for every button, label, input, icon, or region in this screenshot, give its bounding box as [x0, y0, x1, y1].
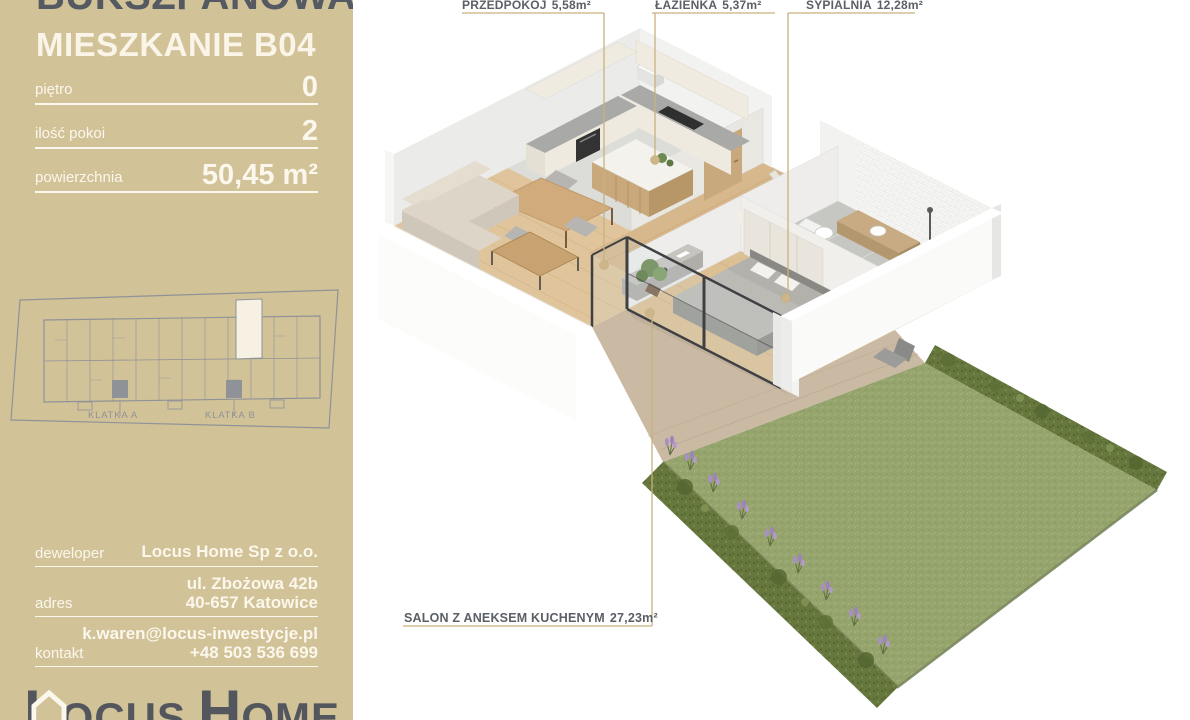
unit-number: B04 [254, 26, 316, 64]
room-area: 5,37m² [722, 0, 761, 12]
developer-label: deweloper [35, 545, 104, 562]
logo-ome: OME [241, 697, 340, 720]
address-label: adres [35, 595, 73, 612]
spec-row-rooms: ilość pokoi 2 [35, 105, 318, 149]
spec-label: powierzchnia [35, 169, 123, 190]
flyer-page: { "sidebar": { "project_name": "BUKSZPAN… [0, 0, 1190, 720]
room-name: ŁAZIENKA [655, 0, 717, 12]
klatka-b-label: KLATKA B [205, 410, 256, 421]
room-area: 27,23m² [610, 611, 658, 625]
house-icon [30, 688, 70, 720]
room-label-lazienka: ŁAZIENKA5,37m² [655, 0, 762, 12]
contact-label: kontakt [35, 645, 83, 662]
contact-email: k.waren@locus-inwestycje.pl [35, 624, 318, 643]
spec-label: ilość pokoi [35, 125, 105, 146]
room-name: SALON Z ANEKSEM KUCHENYM [404, 611, 605, 625]
logo-ocus: OCUS [61, 697, 186, 720]
address-row: ul. Zbożowa 42b 40-657 Katowice adres [35, 574, 318, 617]
spec-value: 50,45 m² [202, 161, 318, 190]
logo-letter-h: H [198, 682, 241, 720]
room-label-przedpokoj: PRZEDPOKÓJ5,58m² [462, 0, 591, 12]
contact-row: k.waren@locus-inwestycje.pl +48 503 536 … [35, 624, 318, 667]
room-area: 5,58m² [552, 0, 591, 12]
klatka-a-label: KLATKA A [88, 410, 138, 421]
spec-row-floor: piętro 0 [35, 70, 318, 105]
developer-row: deweloper Locus Home Sp z o.o. [35, 542, 318, 567]
contact-section: deweloper Locus Home Sp z o.o. ul. Zbożo… [35, 542, 318, 667]
unit-row: MIESZKANIE B04 [36, 26, 316, 64]
spec-label: piętro [35, 81, 73, 102]
locus-home-logo: LOCUSHOME [24, 682, 340, 720]
room-name: PRZEDPOKÓJ [462, 0, 547, 12]
building-key-plan [8, 288, 344, 438]
info-sidebar: BUKSZPANOWA MIESZKANIE B04 piętro 0 iloś… [0, 0, 353, 720]
room-label-salon: SALON Z ANEKSEM KUCHENYM27,23m² [404, 611, 658, 625]
room-label-sypialnia: SYPIALNIA12,28m² [806, 0, 923, 12]
spec-table: piętro 0 ilość pokoi 2 powierzchnia 50,4… [35, 70, 318, 193]
spec-row-area: powierzchnia 50,45 m² [35, 149, 318, 193]
spec-value: 0 [302, 73, 318, 102]
unit-label: MIESZKANIE [36, 26, 245, 64]
room-area: 12,28m² [877, 0, 923, 12]
room-name: SYPIALNIA [806, 0, 872, 12]
project-title: BUKSZPANOWA [36, 0, 353, 19]
developer-name: Locus Home Sp z o.o. [141, 542, 318, 562]
address-street: ul. Zbożowa 42b [35, 574, 318, 593]
spec-value: 2 [302, 117, 318, 146]
address-city: 40-657 Katowice [35, 593, 318, 612]
